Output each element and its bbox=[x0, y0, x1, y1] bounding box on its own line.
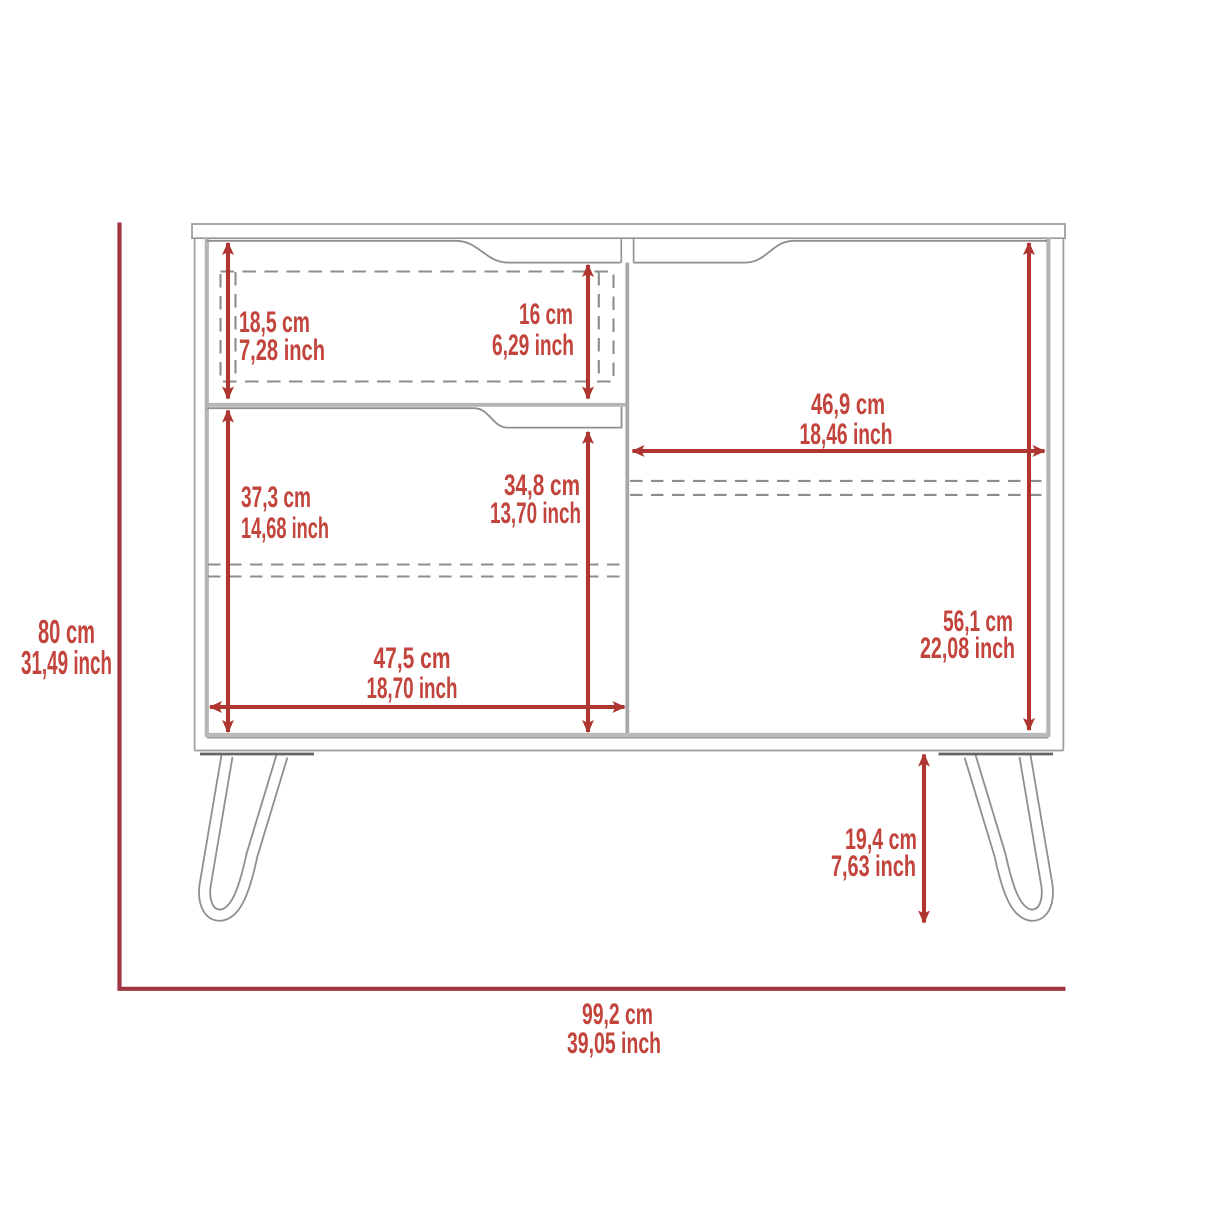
svg-text:7,28 inch: 7,28 inch bbox=[239, 334, 325, 367]
svg-text:13,70 inch: 13,70 inch bbox=[490, 497, 581, 530]
svg-text:39,05 inch: 39,05 inch bbox=[567, 1027, 661, 1060]
svg-text:7,63 inch: 7,63 inch bbox=[831, 850, 916, 883]
svg-text:46,9 cm: 46,9 cm bbox=[811, 388, 885, 421]
svg-text:6,29 inch: 6,29 inch bbox=[492, 329, 574, 362]
svg-text:14,68 inch: 14,68 inch bbox=[241, 512, 329, 545]
svg-text:31,49 inch: 31,49 inch bbox=[21, 644, 112, 681]
svg-text:18,46 inch: 18,46 inch bbox=[800, 418, 893, 451]
svg-text:18,70 inch: 18,70 inch bbox=[367, 672, 458, 705]
svg-text:22,08 inch: 22,08 inch bbox=[920, 632, 1015, 665]
svg-text:16 cm: 16 cm bbox=[519, 298, 573, 331]
svg-text:47,5 cm: 47,5 cm bbox=[374, 642, 451, 675]
svg-text:37,3 cm: 37,3 cm bbox=[241, 481, 311, 514]
